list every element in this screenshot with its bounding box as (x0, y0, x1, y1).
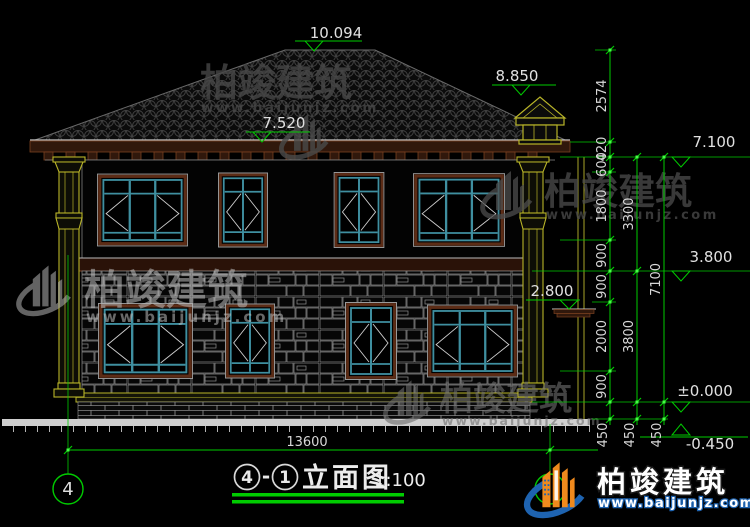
dim-a-900a: 900 (595, 243, 610, 268)
title-underline-1 (232, 493, 404, 497)
marker-upper-triangle (672, 157, 690, 167)
elevation-upper: 7.100 (693, 133, 736, 151)
window-2f-4 (413, 174, 504, 247)
logo-bar-highlight (554, 470, 557, 500)
brand-logo: 柏竣建筑 www.baijunjz.com (521, 462, 750, 523)
dim-a-900b: 900 (595, 274, 610, 299)
axis-bubble-left-label: 4 (62, 479, 73, 500)
elevation-zero: ±0.000 (677, 382, 733, 400)
elevation-canopy: 2.800 (531, 282, 574, 300)
dim-a-2000: 2000 (595, 320, 610, 353)
brand-name-text: 柏竣建筑 (597, 465, 729, 499)
elevation-chimney: 8.850 (496, 67, 539, 85)
window-2f-2 (218, 173, 267, 247)
watermark-brand-text: 柏竣建筑 (84, 266, 248, 314)
elevation-ridge: 10.094 (310, 24, 363, 42)
marker-canopy-triangle (560, 300, 578, 309)
dim-a-900c: 900 (595, 374, 610, 399)
dim-a-600: 600 (595, 152, 610, 177)
window-2f-1 (97, 174, 187, 246)
marker-mid-triangle (672, 271, 690, 281)
marker-zero-triangle (672, 402, 690, 412)
dim-b-3300: 3300 (622, 197, 637, 230)
title-separator: - (262, 464, 270, 488)
cad-elevation-drawing: 柏竣建筑 www.baijunjz.com 柏竣建筑 www.baijunjz.… (0, 0, 750, 527)
title-bubble-end: 1 (279, 468, 291, 488)
marker-chimney-triangle (512, 85, 530, 95)
window-1f-3 (346, 303, 397, 380)
dim-a-2574: 2574 (595, 79, 610, 112)
title-bubble-start: 4 (241, 468, 253, 488)
dim-total-width: 13600 (286, 435, 327, 450)
window-1f-4 (427, 305, 517, 377)
dim-a-1800: 1800 (595, 189, 610, 222)
elevation-eave: 7.520 (263, 114, 306, 132)
elevation-mid: 3.800 (690, 248, 733, 266)
dim-c-450: 450 (650, 423, 665, 448)
porch-column-left (53, 157, 85, 397)
side-canopy (552, 309, 596, 317)
brand-url-text: www.baijunjz.com (598, 496, 750, 511)
watermark-left: 柏竣建筑 www.baijunjz.com (14, 265, 288, 326)
dim-b-450: 450 (623, 423, 638, 448)
title-underline-2 (232, 500, 404, 504)
marker-ground-triangle (672, 424, 690, 435)
dim-c-7100: 7100 (649, 263, 664, 296)
chimney (515, 97, 565, 144)
watermark-brand-text: 柏竣建筑 (544, 170, 692, 213)
axis-bubble-left: 4 (53, 474, 83, 504)
watermark-brand-text: 柏竣建筑 (200, 61, 352, 105)
title-scale: 1:100 (374, 470, 426, 491)
drawing-canvas: 柏竣建筑 www.baijunjz.com 柏竣建筑 www.baijunjz.… (0, 0, 750, 527)
elevation-ground: -0.450 (686, 435, 734, 453)
dim-a-450: 450 (596, 423, 611, 448)
watermark-url-text: www.baijunjz.com (442, 413, 602, 428)
window-2f-3 (334, 172, 384, 247)
logo-building-icon (542, 462, 574, 507)
watermark-url-text: www.baijunjz.com (86, 308, 287, 326)
dim-b-3800: 3800 (622, 320, 637, 353)
drawing-title: 4 - 1 立面图 1:100 (232, 462, 426, 504)
